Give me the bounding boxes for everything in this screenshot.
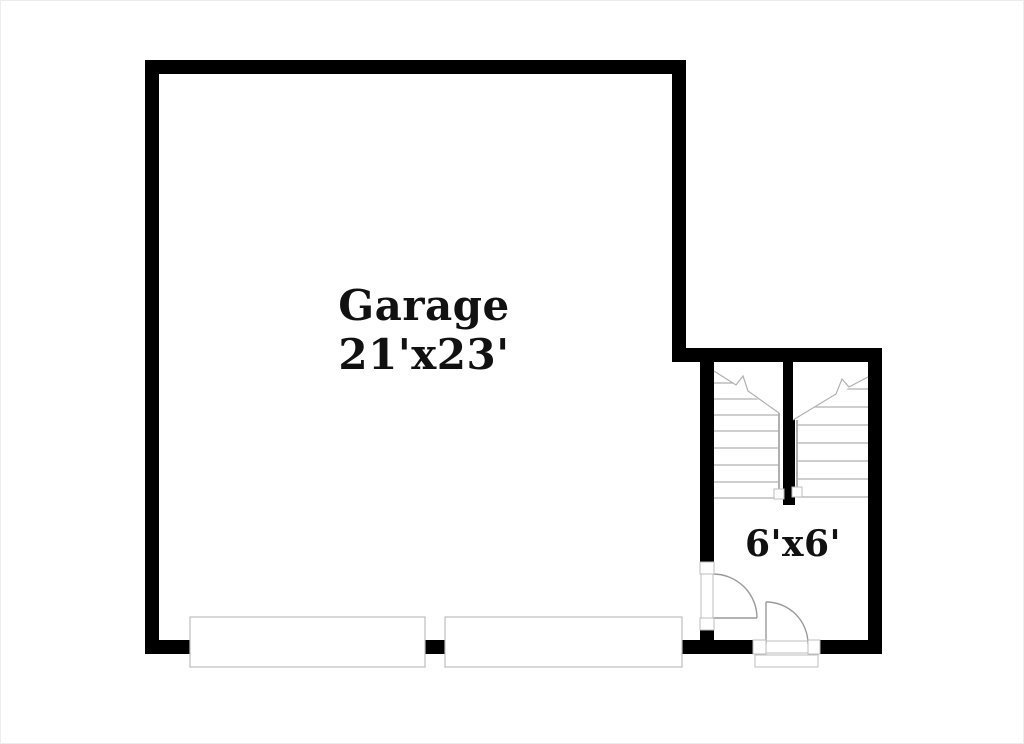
doors	[713, 574, 808, 644]
garage-room-name: Garage	[264, 281, 584, 330]
wall-bottom-left	[145, 640, 190, 654]
wall-interior-lower	[700, 630, 714, 654]
wall-bottom-pier	[425, 640, 445, 654]
wall-top	[145, 60, 686, 74]
wall-annex-right	[868, 348, 882, 654]
wall-bottom-mid	[682, 640, 753, 654]
wall-interior-upper	[700, 362, 714, 562]
stair-cut-mask-right	[793, 362, 868, 420]
floor-plan: Garage 21'x23' 6'x6'	[0, 0, 1024, 744]
exterior-door-swing-arc	[766, 602, 808, 644]
garage-door-panel-1	[190, 617, 425, 667]
landing-dimensions-label: 6'x6'	[713, 524, 873, 564]
door-jamb	[753, 640, 766, 654]
interior-door-swing-arc	[713, 574, 757, 618]
door-jamb	[700, 562, 714, 574]
wall-garage-right	[672, 60, 686, 362]
stair-newel-post	[792, 487, 802, 497]
stair-newel-post	[774, 489, 784, 499]
garage-door-panel-2	[445, 617, 682, 667]
garage-room-label: Garage 21'x23'	[264, 281, 584, 379]
door-jamb	[700, 618, 714, 630]
exterior-stoop	[755, 655, 818, 667]
wall-bottom-right	[820, 640, 882, 654]
garage-room-dimensions: 21'x23'	[264, 330, 584, 379]
door-jamb	[808, 640, 820, 654]
wall-annex-top	[672, 348, 882, 362]
wall-left	[145, 60, 159, 654]
